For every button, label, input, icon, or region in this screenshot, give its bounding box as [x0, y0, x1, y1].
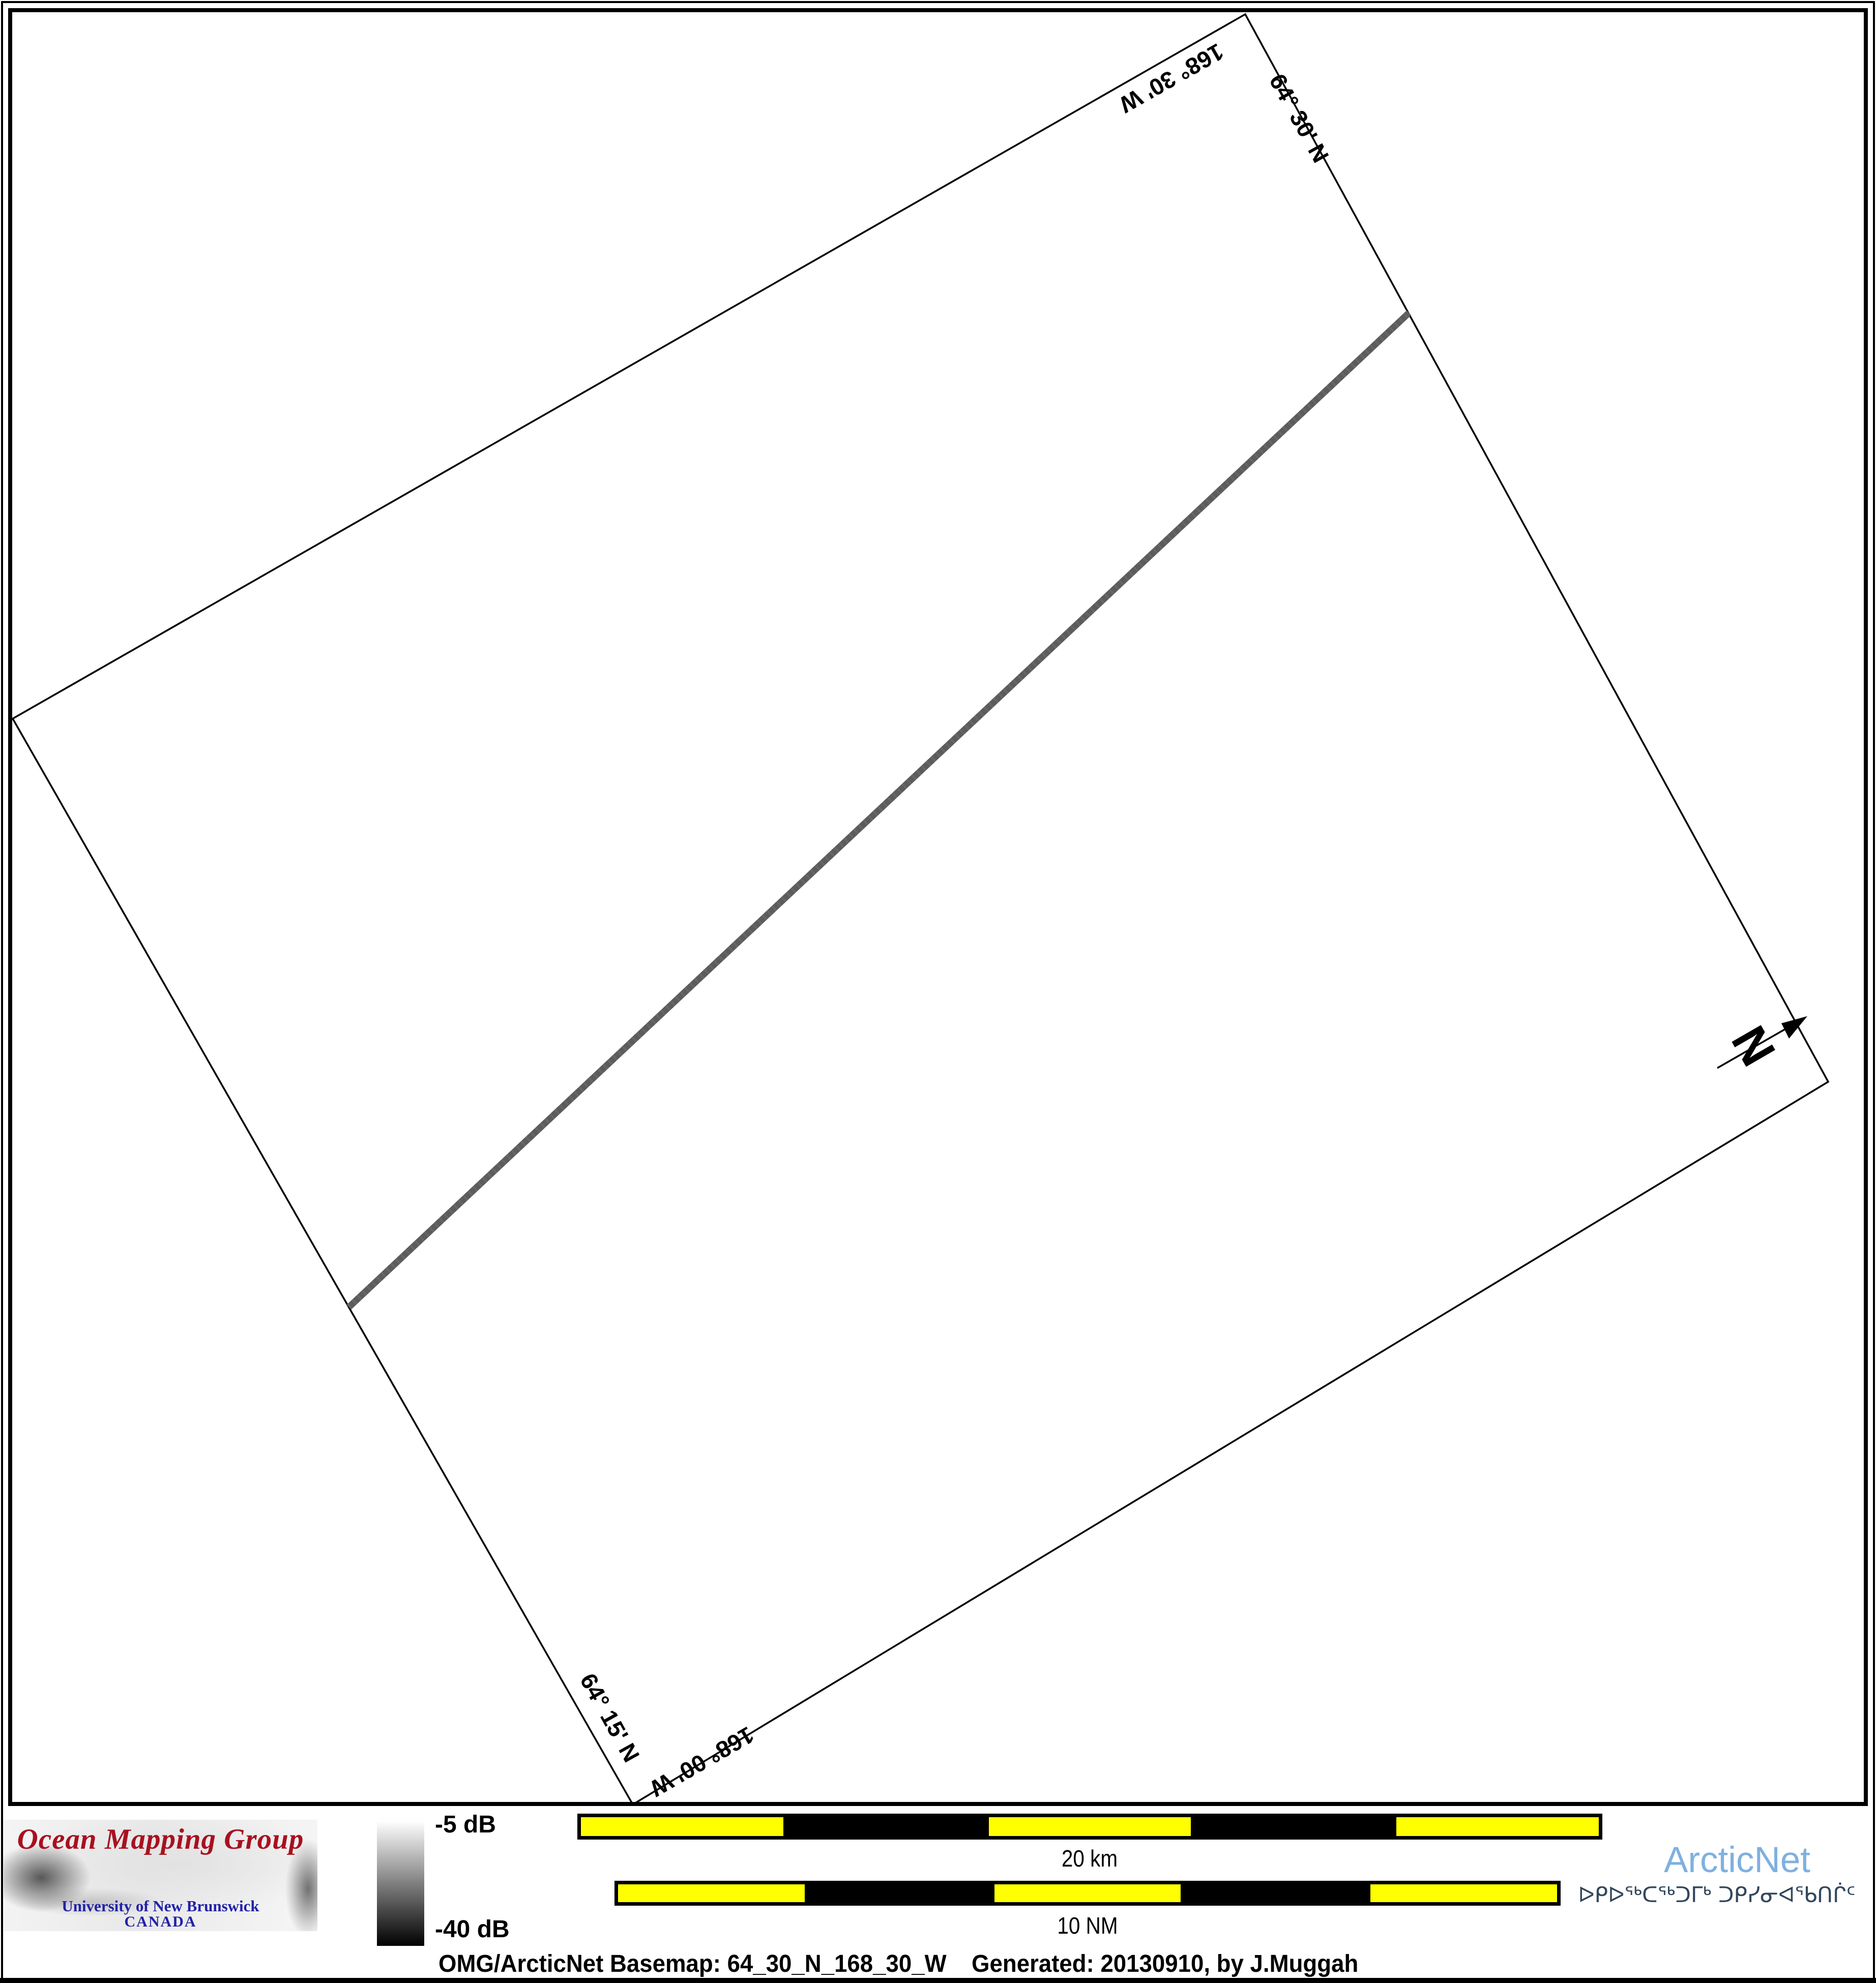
caption-line: OMG/ArcticNet Basemap: 64_30_N_168_30_WG…: [438, 1950, 1358, 1978]
north-arrow-letter: N: [1721, 1017, 1785, 1075]
footer-strip: Ocean Mapping Group University of New Br…: [0, 1806, 1876, 1978]
graticule-rectangle: [13, 14, 1828, 1804]
basemap-page: 168° 30' W 64° 30' N 64° 15' N 168° 00' …: [0, 0, 1876, 1983]
graticule-label-lat-top: 64° 30' N: [1264, 69, 1334, 167]
scalebar-nm-segment: [993, 1883, 1183, 1904]
scalebar-nm: [614, 1881, 1561, 1906]
scalebar-km-segment: [579, 1816, 785, 1838]
arcticnet-logo: ArcticNet: [1643, 1840, 1831, 1881]
scalebar-km-segment: [1395, 1816, 1600, 1838]
colorbar-min-label: -40 dB: [435, 1915, 510, 1943]
scalebar-km-segment: [785, 1816, 987, 1838]
graticule-label-lat-bottom: 64° 15' N: [575, 1669, 645, 1766]
scalebar-nm-segment: [617, 1883, 806, 1904]
arcticnet-syllabics: ᐅᑭᐅᖅᑕᖅᑐᒥᒃ ᑐᑭᓯᓂᐊᖃᑎᒌᑦ: [1561, 1882, 1873, 1907]
colorbar-max-label: -5 dB: [435, 1811, 496, 1839]
caption-generated: Generated: 20130910, by J.Muggah: [972, 1950, 1358, 1977]
scalebar-nm-segment: [1369, 1883, 1559, 1904]
omg-country-label: CANADA: [4, 1913, 317, 1931]
map-canvas: 168° 30' W 64° 30' N 64° 15' N 168° 00' …: [0, 0, 1876, 1983]
scalebar-km-label: 20 km: [1000, 1845, 1179, 1872]
omg-logo-title: Ocean Mapping Group: [4, 1823, 317, 1856]
scalebar-nm-segment: [806, 1883, 993, 1904]
omg-logo: Ocean Mapping Group University of New Br…: [4, 1820, 317, 1931]
backscatter-colorbar: [377, 1814, 424, 1946]
scalebar-km-segment: [1192, 1816, 1395, 1838]
scalebar-km-segment: [987, 1816, 1193, 1838]
scalebar-nm-label: 10 NM: [998, 1912, 1177, 1939]
graticule-label-lon-bottom: 168° 00' W: [646, 1722, 758, 1802]
page-bottom-border: [0, 1978, 1876, 1983]
omg-university-label: University of New Brunswick: [4, 1897, 317, 1915]
scalebar-nm-segment: [1182, 1883, 1369, 1904]
scalebar-km: [577, 1814, 1602, 1840]
caption-basemap: OMG/ArcticNet Basemap: 64_30_N_168_30_W: [438, 1950, 947, 1977]
north-arrow: N: [1717, 1016, 1807, 1075]
